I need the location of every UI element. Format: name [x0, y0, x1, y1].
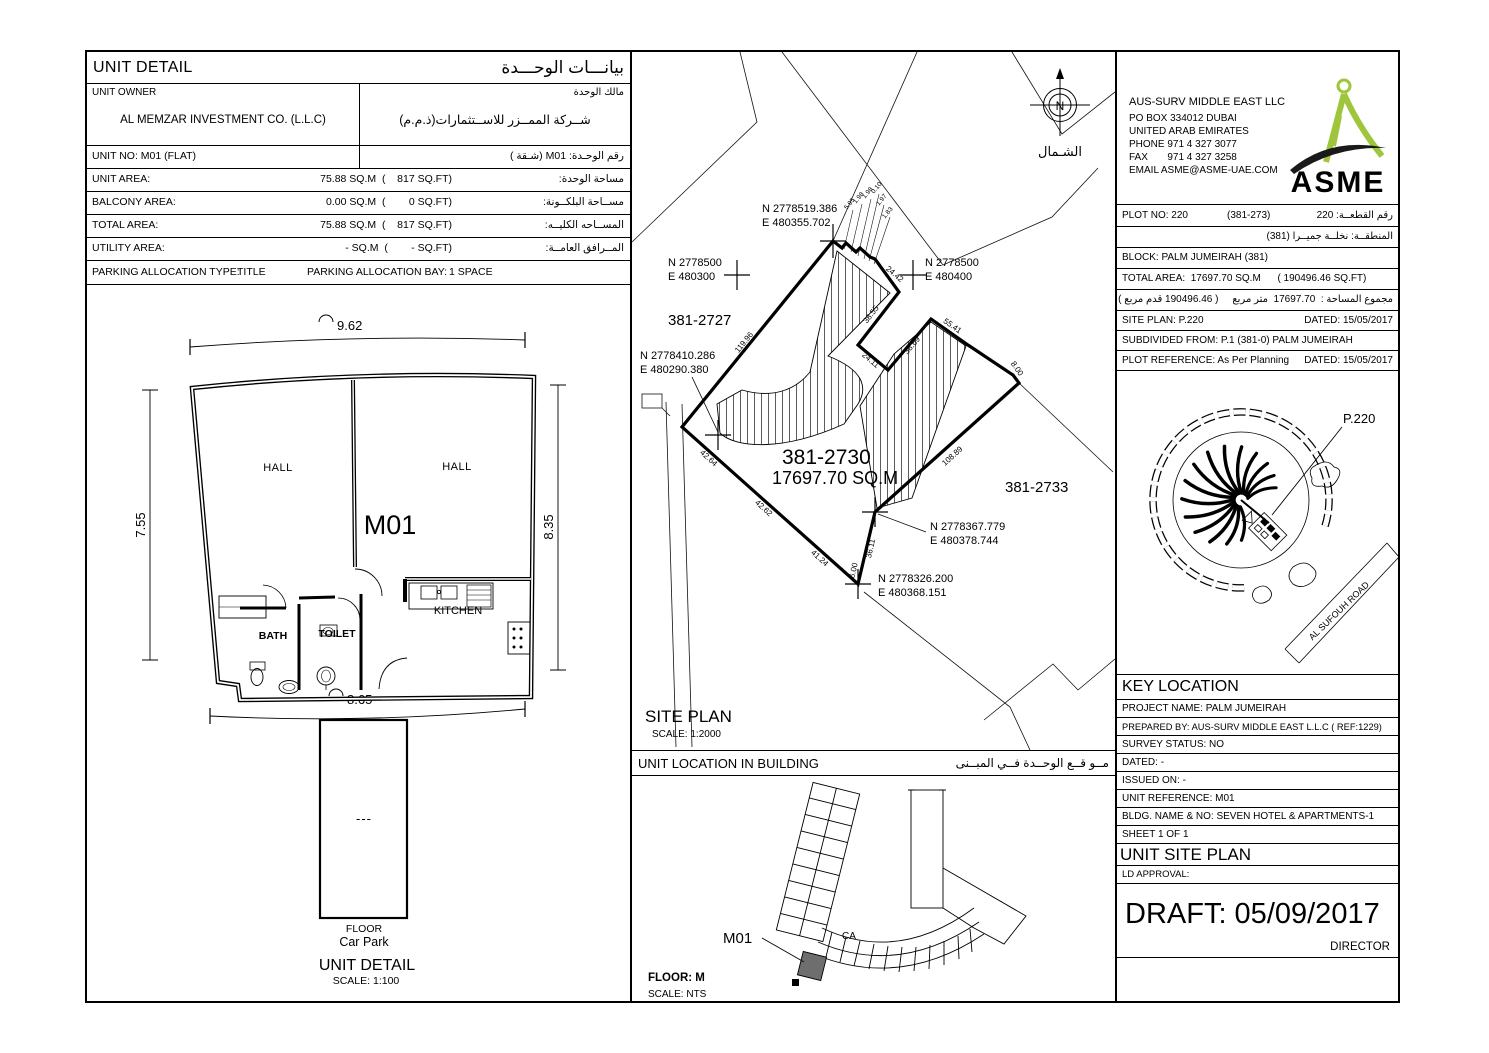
bldg-name-row: BLDG. NAME & NO: SEVEN HOTEL & APARTMENT…	[1117, 808, 1398, 826]
project-name: PROJECT NAME: PALM JUMEIRAH	[1122, 703, 1286, 714]
unit-reference: UNIT REFERENCE: M01	[1122, 793, 1235, 804]
total-area-value: 75.88 SQ.M ( 817 SQ.FT)	[320, 219, 452, 231]
survey-status: SURVEY STATUS: NO	[1122, 739, 1224, 750]
firm-fax: FAX 971 4 327 3258	[1129, 151, 1285, 164]
al-sufouh-road-label: AL SUFOUH ROAD	[1307, 579, 1372, 642]
key-location-header: KEY LOCATION	[1117, 675, 1398, 700]
coord-right-e: E 480400	[925, 271, 972, 283]
dated: DATED: -	[1122, 757, 1164, 768]
firm-email: EMAIL ASME@ASME-UAE.COM	[1129, 164, 1285, 177]
site-plan-scale: SCALE: 1:2000	[652, 729, 721, 740]
unit-owner-value: AL MEMZAR INVESTMENT CO. (L.L.C)	[87, 114, 359, 126]
north-compass-icon: N الشـمال	[1030, 68, 1090, 159]
unit-no-row: UNIT NO: M01 (FLAT) رقم الوحـدة: M01 (شـ…	[87, 146, 630, 169]
edge-tiny-5: 1.97	[875, 193, 889, 207]
firm-addr1: PO BOX 334012 DUBAI	[1129, 112, 1285, 125]
prepared-by: PREPARED BY: AUS-SURV MIDDLE EAST L.L.C …	[1122, 722, 1382, 732]
unit-location-m01-label: M01	[723, 930, 752, 947]
dim-top: 9.62	[337, 318, 362, 333]
project-name-row: PROJECT NAME: PALM JUMEIRAH	[1117, 700, 1398, 718]
key-map: P.220 AL SUFOUH ROAD	[1117, 371, 1398, 675]
total-area-label: TOTAL AREA:	[92, 219, 158, 231]
survey-status-row: SURVEY STATUS: NO	[1117, 736, 1398, 754]
site-plan-row: SITE PLAN: P.220 DATED: 15/05/2017	[1117, 311, 1398, 331]
unit-location-floor: FLOOR: M	[648, 972, 705, 984]
total-area-row-ar: مجموع المساحة : 17697.70 متر مربع ( 1904…	[1117, 290, 1398, 311]
unit-reference-row: UNIT REFERENCE: M01	[1117, 790, 1398, 808]
site-plan-caption: SITE PLAN	[645, 707, 732, 726]
site-plan-dated: DATED: 15/05/2017	[1304, 315, 1393, 326]
sheet-number: SHEET 1 OF 1	[1122, 829, 1189, 840]
issued-on-row: ISSUED ON: -	[1117, 772, 1398, 790]
plot-no-row: PLOT NO: 220 (381-273) رقم القطعــة: 220	[1117, 205, 1398, 227]
unit-area-value: 75.88 SQ.M ( 817 SQ.FT)	[320, 173, 452, 185]
plot-no-ar: رقم القطعــة: 220	[1317, 210, 1393, 221]
unit-site-plan-header: UNIT SITE PLAN	[1117, 844, 1398, 866]
edge-42-62: 42.62	[753, 498, 774, 518]
floor-plan-drawing: 9.62 7.55 8.35 8.65	[87, 292, 630, 1001]
unit-detail-panel: UNIT DETAIL بيانـــات الوحـــدة UNIT OWN…	[85, 50, 632, 1003]
dim-left: 7.55	[133, 512, 148, 537]
ld-approval-row: LD APPROVAL:	[1117, 866, 1398, 884]
utility-area-label-ar: المــرافق العامــة:	[546, 242, 624, 254]
bath-label: BATH	[259, 630, 287, 642]
issued-on: ISSUED ON: -	[1122, 775, 1186, 786]
total-area-row-en: TOTAL AREA: 17697.70 SQ.M ( 190496.46 SQ…	[1117, 269, 1398, 290]
plot-381-2733: 381-2733	[1005, 479, 1068, 496]
site-plan-panel: N 2778519.386 E 480355.702 N 2778500 E 4…	[630, 50, 1117, 1003]
unit-location-drawing: M01 CA FLOOR: M SCALE: NTS	[632, 776, 1115, 1001]
core-label: CA	[842, 931, 856, 942]
edge-24-11: 24.11	[860, 350, 881, 370]
bldg-name: BLDG. NAME & NO: SEVEN HOTEL & APARTMENT…	[1122, 811, 1374, 822]
unit-detail-title-ar: بيانـــات الوحـــدة	[501, 58, 624, 78]
coord-right-n: N 2778500	[925, 257, 979, 269]
unit-owner-row: UNIT OWNER AL MEMZAR INVESTMENT CO. (L.L…	[87, 84, 630, 146]
north-letter: N	[1056, 99, 1065, 113]
site-plan-drawing: N 2778519.386 E 480355.702 N 2778500 E 4…	[632, 52, 1115, 750]
plot-no: PLOT NO: 220	[1122, 210, 1188, 221]
draft-box: DRAFT: 05/09/2017 DIRECTOR	[1117, 884, 1398, 958]
utility-area-row: UTILITY AREA: - SQ.M ( - SQ.FT) المــراف…	[87, 238, 630, 261]
unit-location-title-ar: مــو قــع الوحــدة فــي المبــنى	[956, 756, 1109, 770]
balcony-area-row: BALCONY AREA: 0.00 SQ.M ( 0 SQ.FT) مســا…	[87, 192, 630, 215]
total-area-label-ar: المســاحه الكليــه:	[545, 219, 624, 231]
unit-owner-label-ar: مالك الوحدة	[574, 87, 624, 98]
unit-owner-label: UNIT OWNER	[92, 87, 156, 98]
unit-site-plan-title: UNIT SITE PLAN	[1120, 845, 1251, 865]
dim-right: 8.35	[541, 514, 556, 539]
subdivided-row: SUBDIVIDED FROM: P.1 (381-0) PALM JUMEIR…	[1117, 331, 1398, 351]
unit-detail-header: UNIT DETAIL بيانـــات الوحـــدة	[87, 52, 630, 84]
coord-top-e: E 480355.702	[762, 217, 831, 229]
director-label: DIRECTOR	[1330, 941, 1390, 953]
firm-block: AUS-SURV MIDDLE EAST LLC PO BOX 334012 D…	[1117, 52, 1398, 205]
unit-m01-highlight	[797, 951, 826, 980]
coord-left-e: E 480300	[668, 271, 715, 283]
survey-sheet: UNIT DETAIL بيانـــات الوحـــدة UNIT OWN…	[0, 0, 1489, 1053]
sheet-row: SHEET 1 OF 1	[1117, 826, 1398, 844]
coord-west-e: E 480290.380	[640, 364, 709, 376]
edge-36-11: 36.11	[864, 537, 877, 558]
unit-detail-title-en: UNIT DETAIL	[93, 59, 193, 77]
firm-addr2: UNITED ARAB EMIRATES	[1129, 125, 1285, 138]
plot-reference-value: PLOT REFERENCE: As Per Planning	[1122, 355, 1289, 366]
plot-381-2727: 381-2727	[668, 312, 731, 329]
utility-area-label: UTILITY AREA:	[92, 242, 165, 254]
draft-date: DRAFT: 05/09/2017	[1125, 898, 1380, 931]
title-block-panel: AUS-SURV MIDDLE EAST LLC PO BOX 334012 D…	[1115, 50, 1400, 1003]
balcony-area-value: 0.00 SQ.M ( 0 SQ.FT)	[326, 196, 452, 208]
toilet-label: TOILET	[318, 628, 356, 640]
balcony-area-label: BALCONY AREA:	[92, 196, 176, 208]
utility-area-value: - SQ.M ( - SQ.FT)	[345, 242, 452, 254]
asme-logo-icon: ASME	[1282, 74, 1394, 196]
coord-west-n: N 2778410.286	[640, 350, 715, 362]
total-area-ar: مجموع المساحة : 17697.70 متر مربع ( 1904…	[1118, 294, 1393, 305]
total-area-en: TOTAL AREA: 17697.70 SQ.M ( 190496.46 SQ…	[1122, 273, 1366, 284]
parking-type-value: TITLE	[237, 266, 266, 278]
coord-se-n: N 2778367.779	[930, 521, 1005, 533]
coord-south-e: E 480368.151	[878, 587, 947, 599]
floor-plan-caption: UNIT DETAIL	[319, 957, 415, 974]
total-area-row: TOTAL AREA: 75.88 SQ.M ( 817 SQ.FT) المس…	[87, 215, 630, 238]
floor-plan-scale: SCALE: 1:100	[333, 975, 400, 987]
asme-logo-text: ASME	[1291, 166, 1386, 196]
parking-bay-label: PARKING ALLOCATION BAY:	[307, 266, 447, 278]
signature-box	[1117, 958, 1398, 1003]
coord-south-n: N 2778326.200	[878, 573, 953, 585]
balcony-area-label-ar: مســاحة البلكــونة:	[543, 196, 624, 208]
unit-location-scale: SCALE: NTS	[648, 989, 707, 1000]
kitchen-label: KITCHEN	[434, 605, 482, 617]
palm-jumeirah-map: P.220 AL SUFOUH ROAD	[1117, 371, 1400, 673]
car-park-dash: ---	[356, 811, 372, 826]
edge-108-89: 108.89	[940, 444, 965, 467]
edge-42-64: 42.64	[698, 448, 719, 468]
coord-top-n: N 2778519.386	[762, 203, 837, 215]
parking-bay-value: 1 SPACE	[449, 266, 493, 278]
car-park-label: Car Park	[339, 935, 389, 949]
plot-381-2730-area: 17697.70 SQ.M	[772, 468, 898, 488]
block-value: BLOCK: PALM JUMEIRAH (381)	[1122, 252, 1268, 263]
prepared-by-row: PREPARED BY: AUS-SURV MIDDLE EAST L.L.C …	[1117, 718, 1398, 736]
unit-area-label-ar: مساحة الوحدة:	[559, 173, 624, 185]
unit-owner-value-ar: شــركة الممــزر للاســتثمارات(ذ.م.م)	[360, 112, 630, 127]
parking-type-label: PARKING ALLOCATION TYPE:	[92, 266, 240, 278]
north-label-ar: الشـمال	[1038, 144, 1082, 159]
plot-381-2730: 381-2730	[782, 446, 871, 469]
car-park-floor-label: FLOOR	[346, 923, 383, 935]
parking-row: PARKING ALLOCATION TYPE: TITLE PARKING A…	[87, 261, 630, 285]
edge-tiny-4: 0.10	[870, 181, 884, 195]
hall-right-label: HALL	[442, 461, 472, 473]
hall-left-label: HALL	[263, 462, 293, 474]
plot-reference-row: PLOT REFERENCE: As Per Planning DATED: 1…	[1117, 351, 1398, 371]
district-ar: المنطقــة: نخلــة جميــرا (381)	[1267, 231, 1394, 242]
coord-left-n: N 2778500	[668, 257, 722, 269]
unit-location-header: UNIT LOCATION IN BUILDING مــو قــع الوح…	[632, 750, 1115, 776]
key-location-title: KEY LOCATION	[1122, 678, 1239, 696]
edge-41-24: 41.24	[809, 548, 830, 568]
ld-approval: LD APPROVAL:	[1122, 869, 1189, 880]
key-map-p220: P.220	[1343, 411, 1375, 426]
unit-location-title-en: UNIT LOCATION IN BUILDING	[638, 756, 819, 771]
site-plan-no: SITE PLAN: P.220	[1122, 315, 1204, 326]
firm-name: AUS-SURV MIDDLE EAST LLC	[1129, 96, 1285, 109]
dated-row: DATED: -	[1117, 754, 1398, 772]
district-row: المنطقــة: نخلــة جميــرا (381)	[1117, 227, 1398, 248]
unit-no-ar: رقم الوحـدة: M01 (شـقة )	[510, 150, 624, 162]
unit-area-row: UNIT AREA: 75.88 SQ.M ( 817 SQ.FT) مساحة…	[87, 169, 630, 192]
subdivided-value: SUBDIVIDED FROM: P.1 (381-0) PALM JUMEIR…	[1122, 335, 1353, 346]
plot-no-paren: (381-273)	[1227, 210, 1270, 221]
coord-se-e: E 480378.744	[930, 535, 999, 547]
block-row: BLOCK: PALM JUMEIRAH (381)	[1117, 248, 1398, 269]
plot-reference-dated: DATED: 15/05/2017	[1304, 355, 1393, 366]
unit-no: UNIT NO: M01 (FLAT)	[92, 150, 196, 162]
unit-area-label: UNIT AREA:	[92, 173, 150, 185]
unit-label: M01	[364, 510, 417, 540]
firm-phone: PHONE 971 4 327 3077	[1129, 138, 1285, 151]
